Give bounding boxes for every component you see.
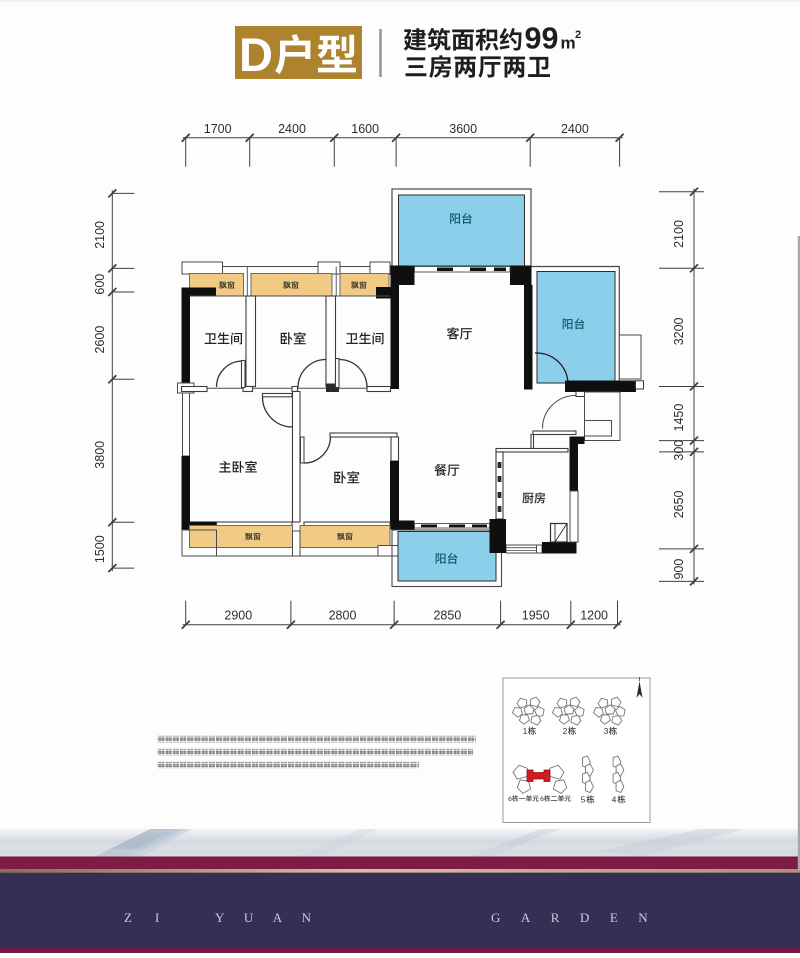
svg-text:600: 600 — [93, 274, 107, 295]
svg-text:1200: 1200 — [580, 609, 608, 623]
svg-text:GARDEN: GARDEN — [491, 910, 668, 925]
svg-text:3200: 3200 — [672, 317, 686, 345]
svg-text:1700: 1700 — [204, 122, 232, 136]
svg-text:2600: 2600 — [93, 326, 107, 354]
svg-text:3: 3 — [604, 726, 609, 736]
svg-text:2800: 2800 — [329, 609, 357, 623]
svg-text:ZI: ZI — [124, 910, 182, 925]
svg-text:2100: 2100 — [672, 220, 686, 248]
svg-text:6: 6 — [540, 796, 544, 803]
svg-text:5: 5 — [581, 795, 586, 805]
svg-text:2650: 2650 — [672, 490, 686, 518]
svg-text:2100: 2100 — [93, 221, 107, 249]
svg-text:D: D — [239, 28, 273, 81]
svg-text:4: 4 — [612, 795, 617, 805]
svg-text:900: 900 — [672, 559, 686, 580]
svg-text:2: 2 — [575, 29, 581, 41]
svg-text:1950: 1950 — [522, 609, 550, 623]
svg-text:99: 99 — [525, 22, 559, 56]
svg-text:2400: 2400 — [278, 122, 306, 136]
svg-text:6: 6 — [508, 796, 512, 803]
svg-text:YUAN: YUAN — [215, 910, 331, 925]
svg-text:300: 300 — [672, 440, 686, 461]
svg-text:2400: 2400 — [561, 122, 589, 136]
svg-text:m: m — [561, 34, 576, 53]
svg-text:1600: 1600 — [351, 122, 379, 136]
svg-text:3800: 3800 — [93, 441, 107, 469]
svg-text:3600: 3600 — [449, 122, 477, 136]
svg-text:1500: 1500 — [93, 535, 107, 563]
svg-text:1450: 1450 — [672, 404, 686, 432]
svg-text:2: 2 — [563, 726, 568, 736]
svg-text:2900: 2900 — [224, 609, 252, 623]
svg-text:2850: 2850 — [433, 609, 461, 623]
svg-text:1: 1 — [523, 726, 528, 736]
